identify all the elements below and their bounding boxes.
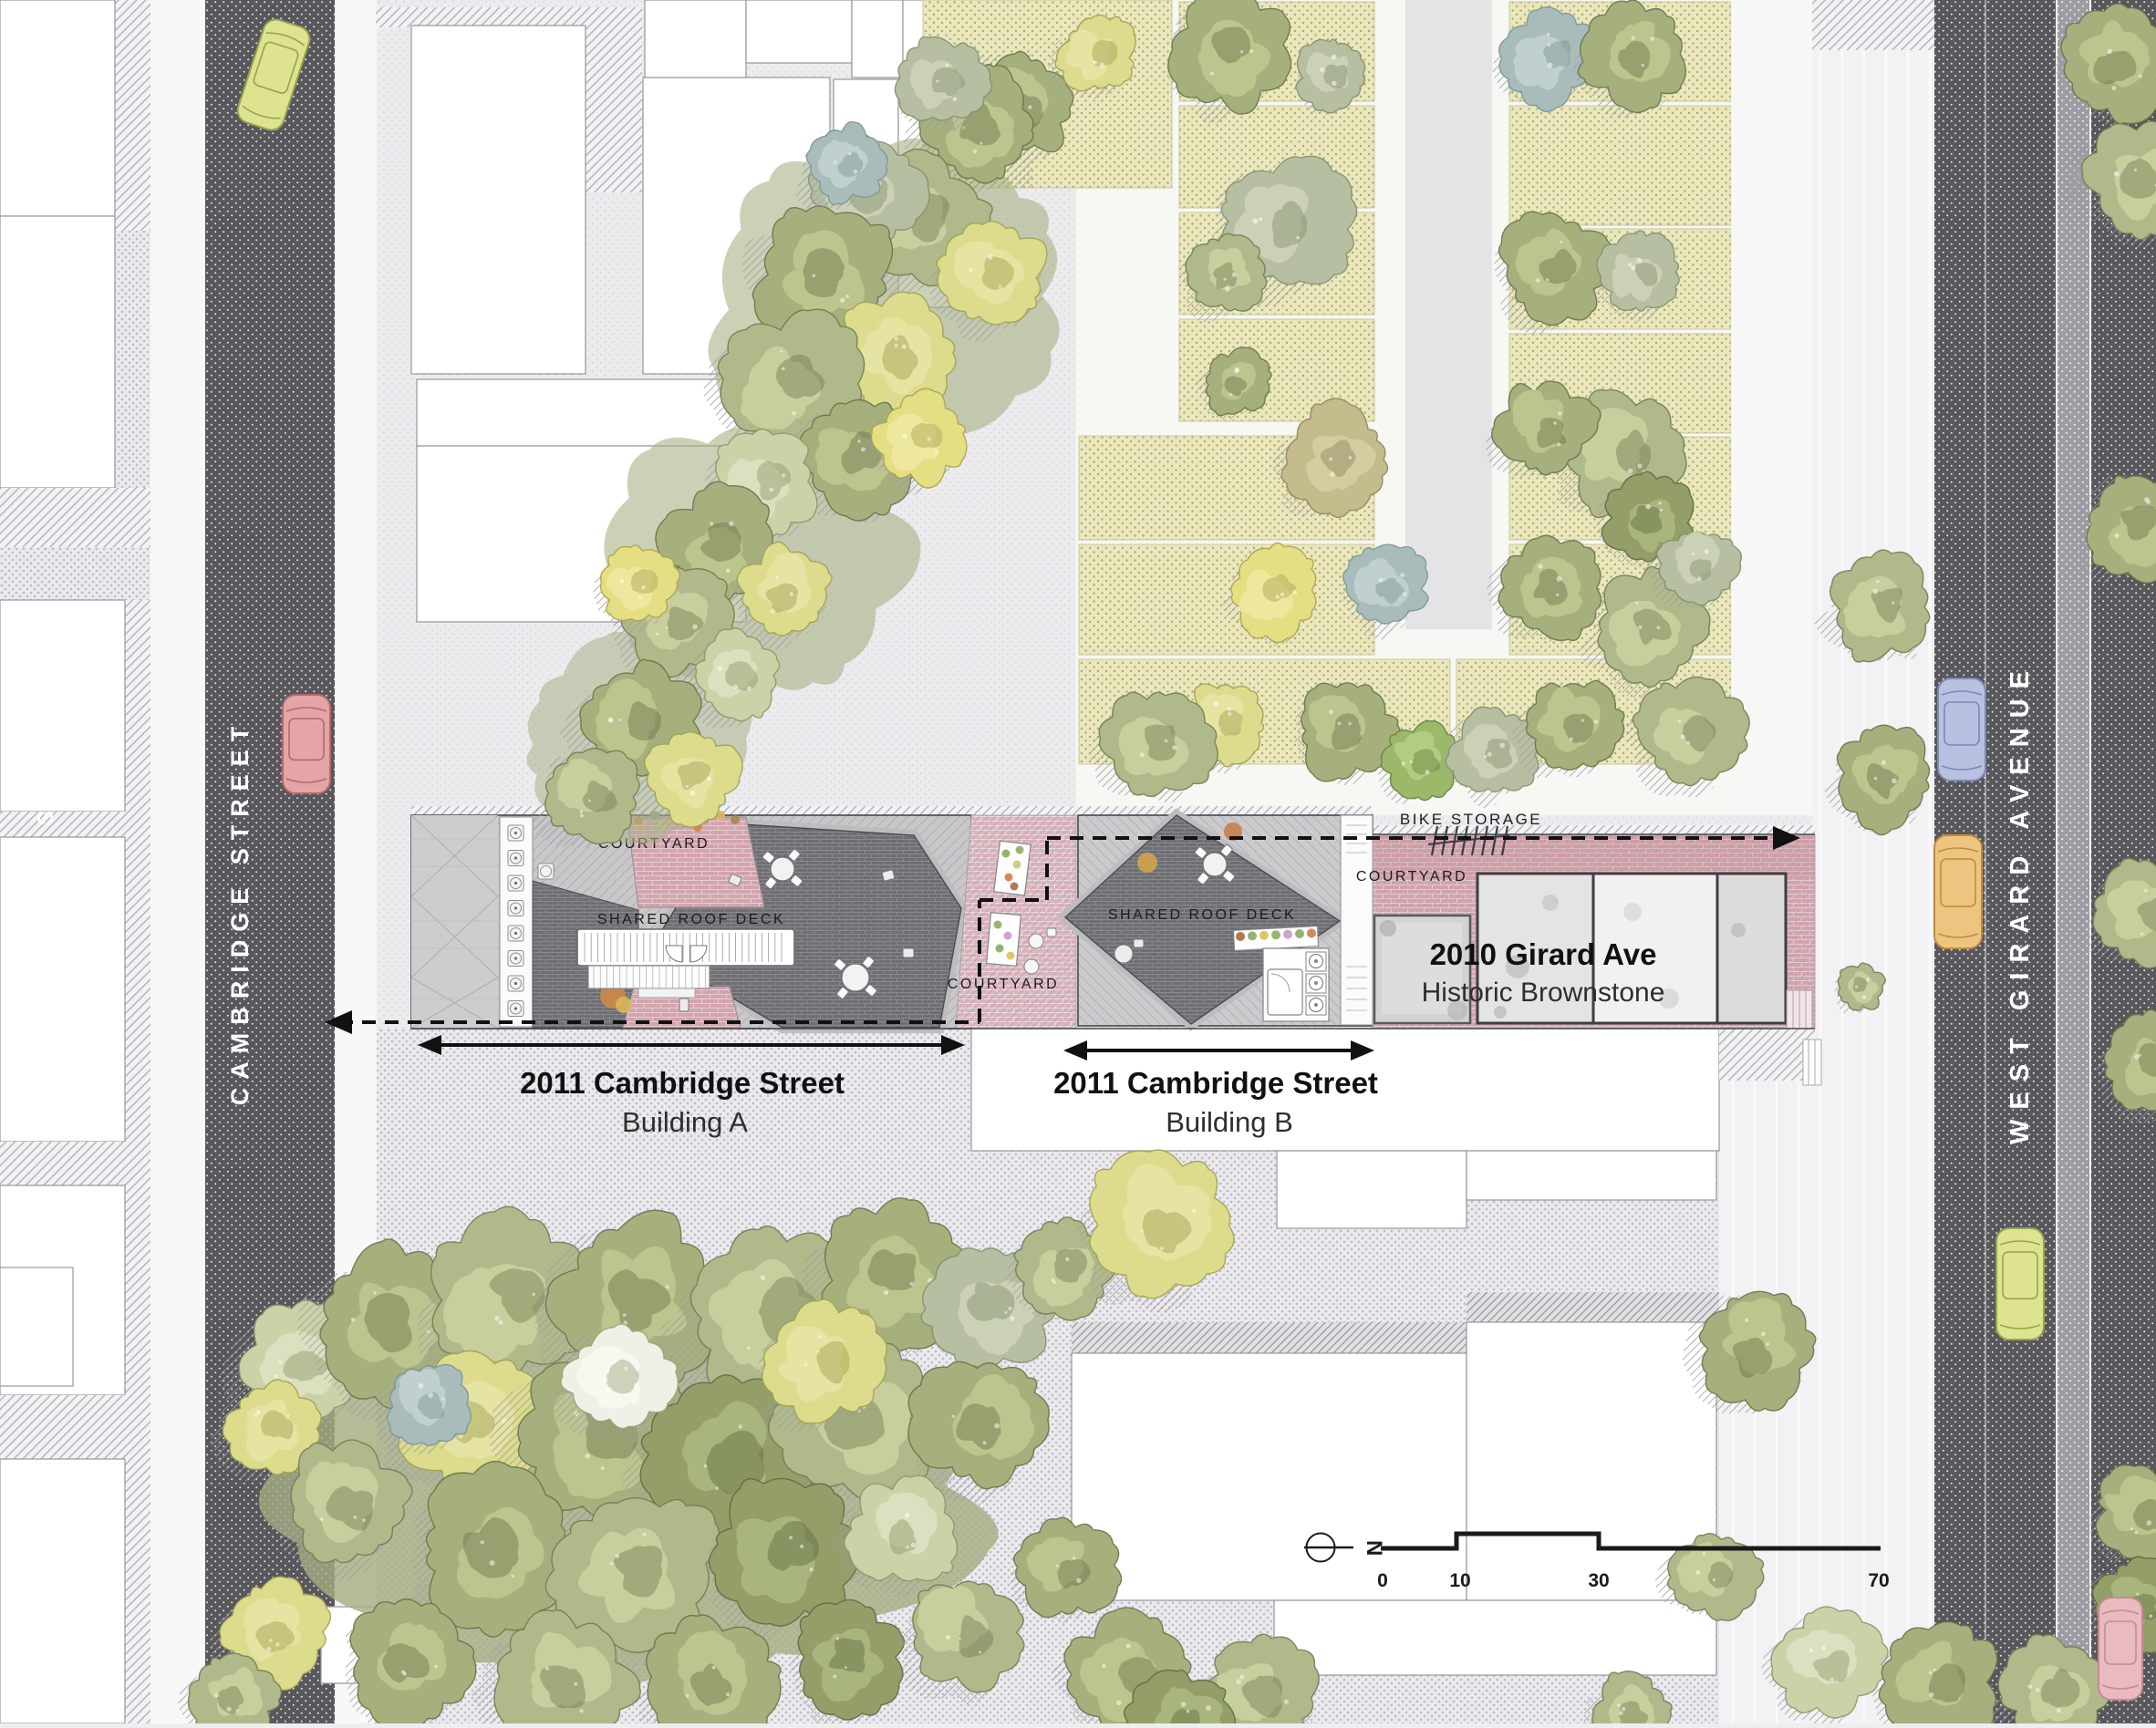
svg-text:Building B: Building B: [1166, 1106, 1293, 1138]
svg-text:2010 Girard Ave: 2010 Girard Ave: [1430, 937, 1657, 971]
svg-text:WEST GIRARD AVENUE: WEST GIRARD AVENUE: [2006, 661, 2035, 1144]
svg-text:2011 Cambridge Street: 2011 Cambridge Street: [1053, 1066, 1378, 1100]
svg-text:COURTYARD: COURTYARD: [1356, 869, 1467, 885]
svg-text:10: 10: [1449, 1570, 1470, 1591]
svg-text:70: 70: [1868, 1570, 1889, 1591]
svg-text:CAMBRIDGE STREET: CAMBRIDGE STREET: [226, 719, 254, 1106]
svg-text:2011 Cambridge Street: 2011 Cambridge Street: [520, 1066, 845, 1100]
svg-text:ST: ST: [34, 787, 58, 826]
svg-text:SHARED ROOF DECK: SHARED ROOF DECK: [1108, 907, 1296, 923]
svg-text:COURTYARD: COURTYARD: [948, 977, 1059, 992]
svg-text:SHARED ROOF DECK: SHARED ROOF DECK: [597, 912, 785, 927]
svg-text:BIKE STORAGE: BIKE STORAGE: [1400, 811, 1542, 828]
svg-text:Historic Brownstone: Historic Brownstone: [1422, 978, 1665, 1008]
svg-text:30: 30: [1588, 1570, 1609, 1591]
svg-text:Building A: Building A: [622, 1106, 748, 1138]
svg-text:0: 0: [1377, 1570, 1388, 1591]
